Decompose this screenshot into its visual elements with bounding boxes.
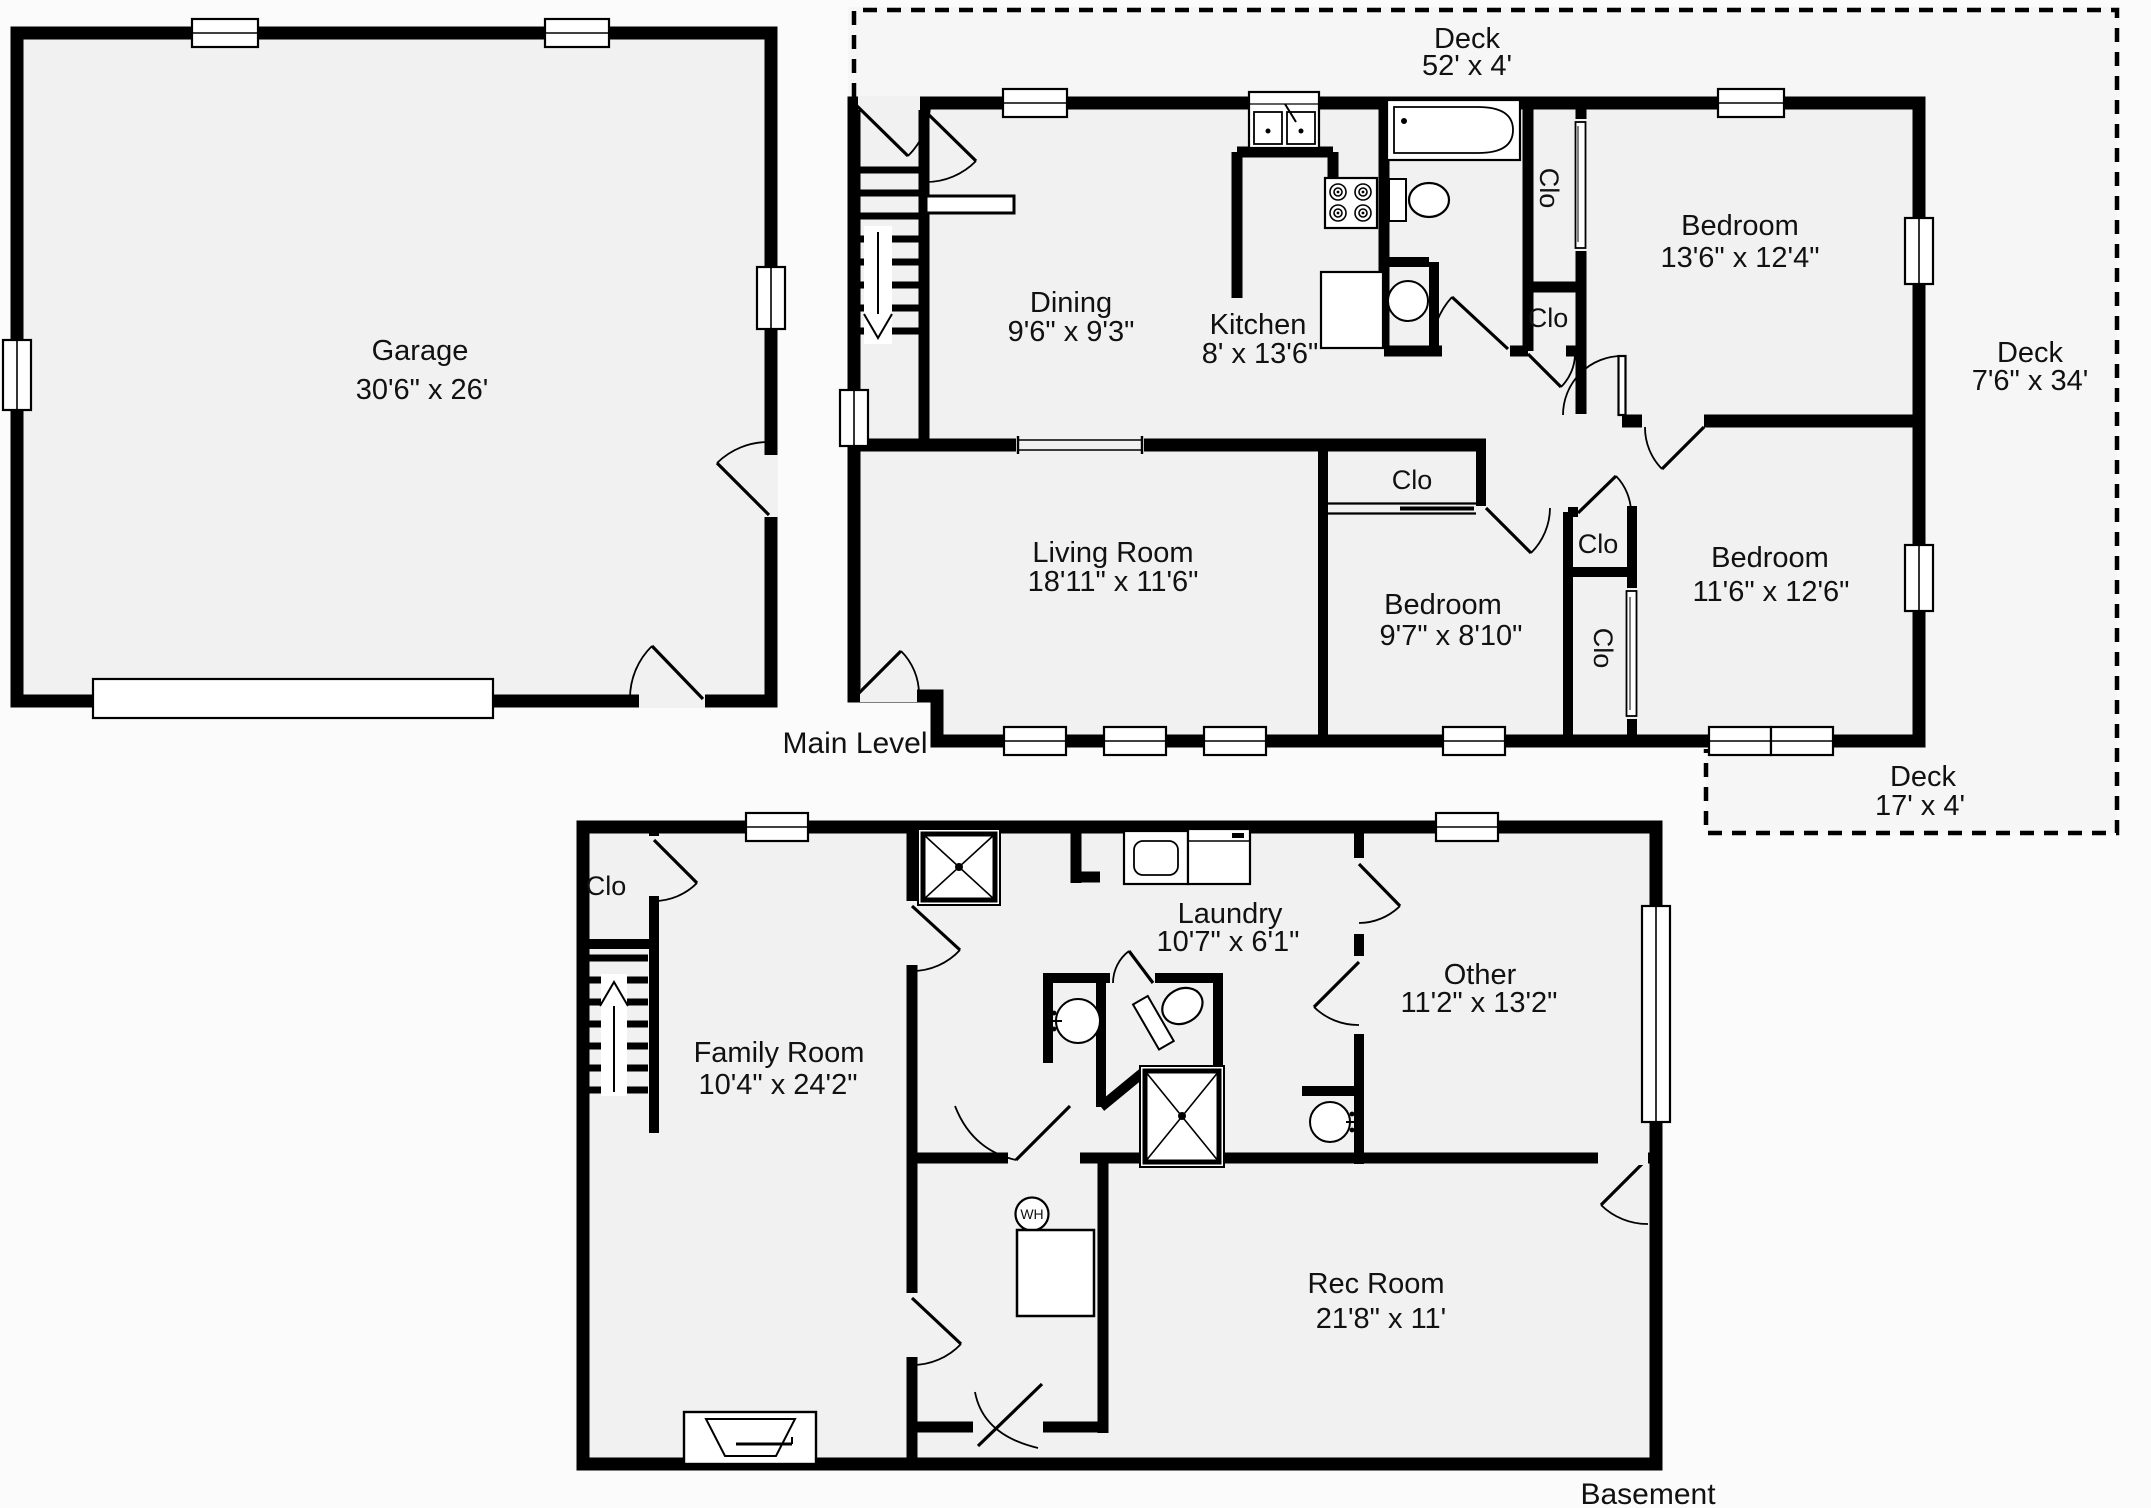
dining-label: Dining [1030, 287, 1112, 319]
water-heater-label: WH [1020, 1206, 1043, 1222]
main-level: Dining 9'6" x 9'3" Kitchen 8' x 13'6" Be… [782, 23, 2088, 822]
dryer-icon [1188, 829, 1250, 884]
toilet-icon [1389, 179, 1449, 221]
deck-bottom-dims: 17' x 4' [1875, 790, 1965, 822]
floor-plan-page: Garage 30'6" x 26' [0, 0, 2151, 1508]
bifold-door [1572, 119, 1589, 251]
kitchen-label: Kitchen [1210, 309, 1307, 341]
closet-label: Clo [1528, 303, 1569, 333]
washer-icon [1124, 831, 1188, 884]
closet-label: Clo [586, 871, 627, 901]
garage-label: Garage [372, 335, 469, 367]
deck-top-dims: 52' x 4' [1422, 50, 1512, 82]
living-room-dims: 18'11" x 11'6" [1028, 566, 1199, 598]
bedroom1-label: Bedroom [1681, 210, 1799, 242]
family-room-label: Family Room [694, 1037, 865, 1069]
laundry-dims: 10'7" x 6'1" [1157, 926, 1300, 958]
stair-half-wall [926, 196, 1014, 213]
cased-opening [1016, 436, 1144, 454]
stove-icon [1325, 178, 1377, 228]
shower-icon [918, 829, 1000, 905]
family-room-dims: 10'4" x 24'2" [698, 1069, 857, 1101]
bifold-door [1624, 588, 1641, 719]
rec-room-label: Rec Room [1308, 1268, 1445, 1300]
garage: Garage 30'6" x 26' [3, 19, 785, 718]
bedroom2-label: Bedroom [1384, 589, 1502, 621]
bathtub-icon [1387, 100, 1520, 160]
refrigerator-icon [1321, 272, 1383, 348]
dining-dims: 9'6" x 9'3" [1008, 316, 1135, 348]
rec-room-dims: 21'8" x 11' [1316, 1303, 1446, 1335]
kitchen-dims: 8' x 13'6" [1202, 338, 1319, 370]
closet-label: Clo [1534, 168, 1564, 209]
deck-right-area [1919, 97, 2117, 747]
kitchen-sink-icon [1249, 92, 1319, 148]
other-dims: 11'2" x 13'2" [1401, 987, 1558, 1019]
bedroom3-label: Bedroom [1711, 542, 1829, 574]
bedroom2-dims: 9'7" x 8'10" [1380, 620, 1523, 652]
water-heater-tank [1017, 1230, 1094, 1316]
garage-outline [17, 33, 771, 701]
bedroom1-dims: 13'6" x 12'4" [1660, 242, 1819, 274]
closet-label: Clo [1578, 529, 1619, 559]
fireplace-icon [684, 1412, 816, 1464]
basement-label: Basement [1580, 1478, 1716, 1508]
garage-dims: 30'6" x 26' [356, 374, 489, 406]
closet-label: Clo [1588, 628, 1618, 669]
bedroom3-dims: 11'6" x 12'6" [1693, 576, 1850, 608]
basement: WH Clo Family Room 10'4" x 24'2" Laundry… [583, 813, 1716, 1508]
deck-bottom-label: Deck [1890, 761, 1957, 793]
floor-plan-image: Garage 30'6" x 26' [0, 0, 2151, 1508]
garage-door [93, 679, 493, 718]
living-room-label: Living Room [1032, 537, 1193, 569]
main-level-label: Main Level [782, 727, 927, 760]
basement-outline [583, 827, 1656, 1464]
deck-right-dims: 7'6" x 34' [1972, 365, 2089, 397]
closet-label: Clo [1392, 465, 1433, 495]
shower-icon [1140, 1066, 1224, 1167]
